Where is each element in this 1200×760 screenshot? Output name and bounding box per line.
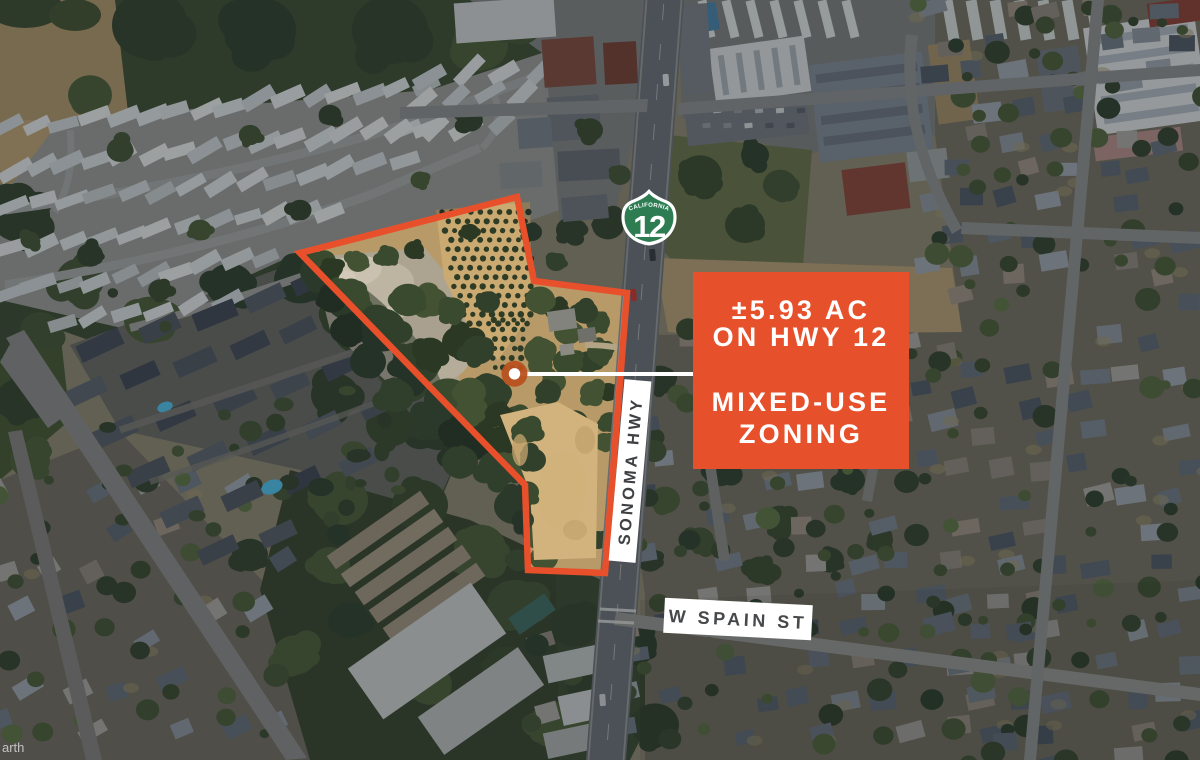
svg-text:±5.93 AC: ±5.93 AC: [732, 295, 870, 325]
svg-text:MIXED-USE: MIXED-USE: [712, 387, 891, 417]
svg-text:12: 12: [633, 209, 665, 244]
svg-text:arth: arth: [2, 740, 24, 755]
svg-text:ZONING: ZONING: [739, 419, 863, 449]
svg-text:ON HWY 12: ON HWY 12: [713, 322, 890, 352]
